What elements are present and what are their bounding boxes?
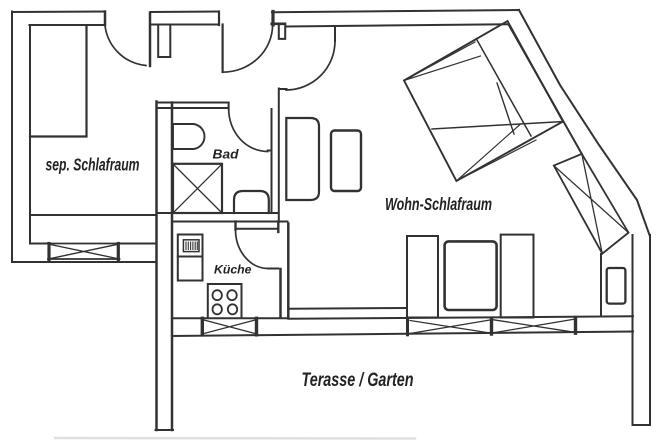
svg-text:Terasse / Garten: Terasse / Garten xyxy=(302,370,414,391)
svg-text:Küche: Küche xyxy=(214,263,252,277)
svg-text:Wohn-Schlafraum: Wohn-Schlafraum xyxy=(385,194,492,214)
svg-text:sep. Schlafraum: sep. Schlafraum xyxy=(46,155,140,175)
svg-text:Bad: Bad xyxy=(213,147,240,162)
